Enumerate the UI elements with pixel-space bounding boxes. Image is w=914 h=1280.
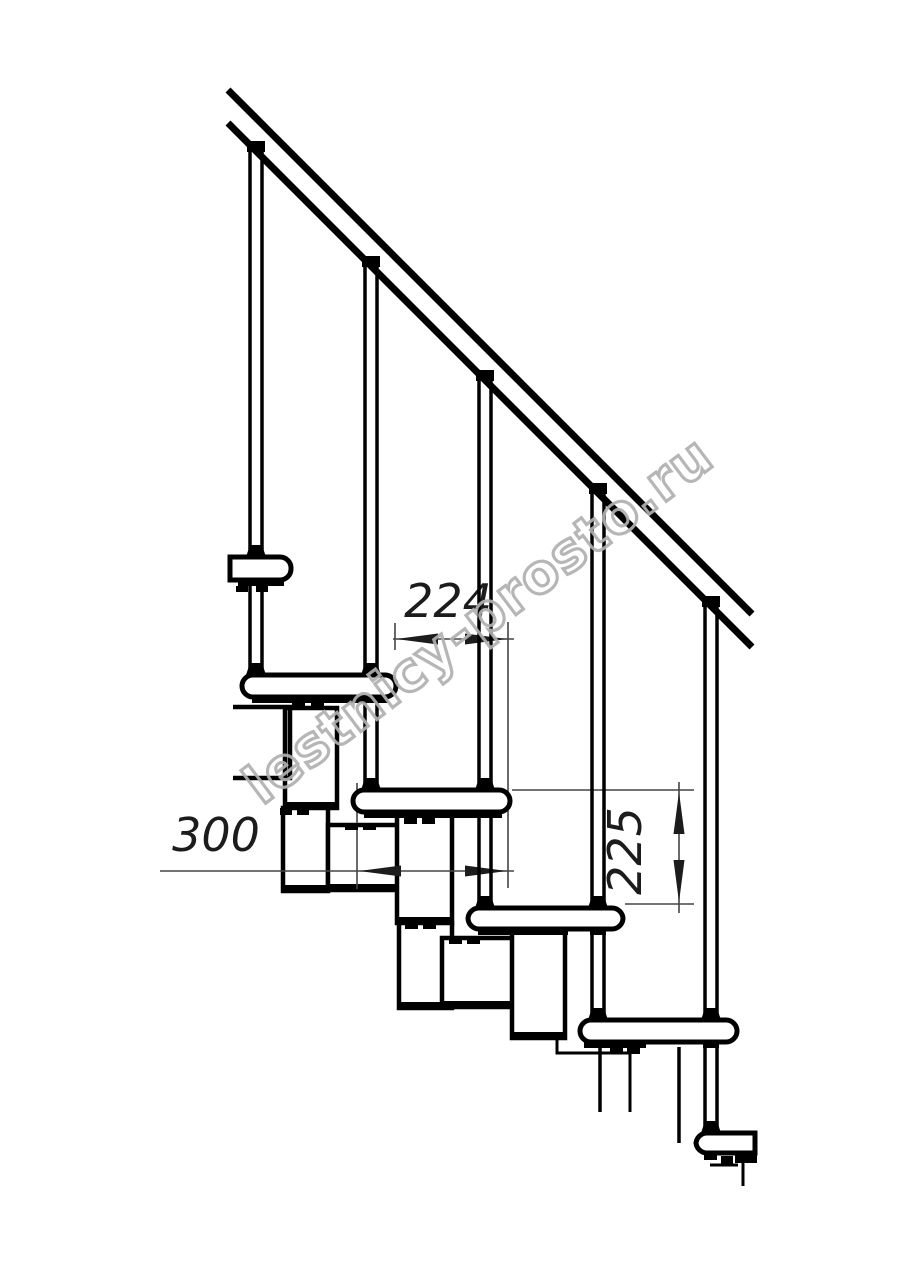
dim-225-arrowhead (674, 792, 685, 834)
stair-tread (230, 557, 291, 580)
module-bottom-edge (510, 1032, 567, 1040)
under-tread-shadow-band (584, 1042, 646, 1048)
connector-nub (704, 1153, 717, 1160)
module-bottom-edge (326, 884, 405, 892)
connector-nub (292, 703, 305, 709)
connector-nub (363, 823, 376, 830)
staircase-drawing-page: 224300225 lestnicy-prosto.ru (0, 0, 914, 1280)
support-module (283, 808, 328, 891)
connector-nub (280, 808, 292, 815)
stair-tread (580, 1020, 737, 1042)
connector-nub (467, 938, 480, 944)
staircase-technical-drawing: 224300225 lestnicy-prosto.ru (0, 0, 914, 1280)
dim-300-arrowhead (465, 866, 507, 877)
connector-nub (721, 1156, 733, 1164)
support-module (397, 815, 452, 923)
baluster-through-flare (248, 580, 264, 586)
connector-nub (405, 923, 418, 929)
dim-300-label: 300 (172, 808, 260, 862)
stair-tread (468, 908, 623, 929)
support-module (442, 938, 518, 1007)
connector-nub (449, 938, 462, 944)
stair-tread (696, 1133, 755, 1153)
connector-nub (297, 808, 309, 815)
dim-225-label: 225 (598, 807, 652, 895)
connector-nub (236, 586, 248, 592)
connector-nub (537, 929, 550, 935)
support-module (328, 825, 403, 890)
dim-225-arrowhead (674, 860, 685, 902)
support-module (512, 932, 565, 1038)
under-tread-shadow-band (735, 1152, 757, 1163)
baluster-through-flare (703, 1042, 719, 1048)
connector-nub (627, 1048, 640, 1054)
connector-nub (610, 1048, 623, 1054)
connector-nub (345, 823, 358, 830)
baluster-through-flare (477, 812, 493, 818)
baluster-through-flare (590, 929, 606, 935)
module-bottom-edge (440, 1001, 520, 1009)
stair-tread (353, 790, 510, 812)
module-bottom-edge (281, 885, 330, 893)
connector-nub (422, 818, 435, 824)
connector-nub (423, 923, 436, 929)
connector-nub (519, 929, 532, 935)
connector-nub (404, 818, 417, 824)
